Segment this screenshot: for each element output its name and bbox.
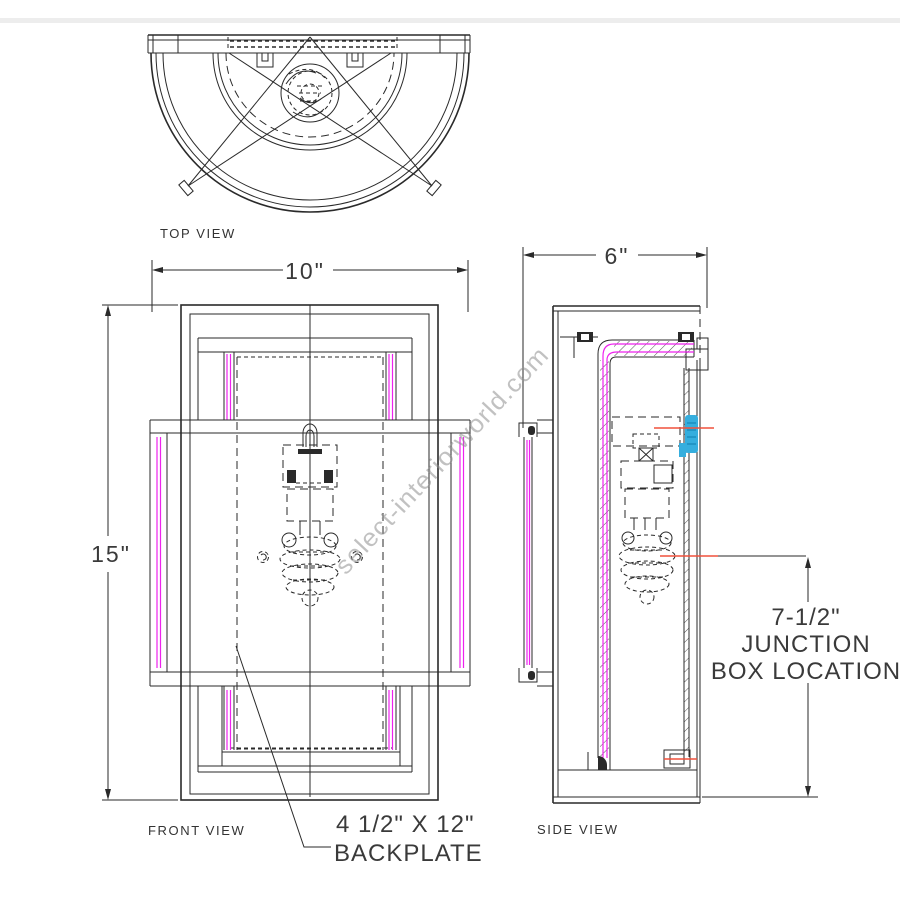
height-dimension-label: 15" xyxy=(91,541,131,567)
width-dimension-label: 10" xyxy=(285,258,325,284)
junction-dim-label: 7-1/2" xyxy=(771,604,840,631)
side-view: 6" xyxy=(519,243,900,837)
watermark: select-interiorworld.com xyxy=(330,341,555,580)
dimension-height-15: 15" xyxy=(91,305,178,800)
page-divider xyxy=(0,18,900,23)
backplate-size-label: 4 1/2" X 12" xyxy=(336,811,474,838)
junction-box-assembly xyxy=(612,415,714,530)
dimension-width-10: 10" xyxy=(152,258,468,312)
front-glass-edge xyxy=(519,420,553,686)
top-view-label: TOP VIEW xyxy=(160,226,236,241)
front-view: 10" 15" xyxy=(91,258,482,867)
backplate-name-label: BACKPLATE xyxy=(334,840,483,867)
glass-panel-side xyxy=(560,332,694,758)
dimension-junction-location: 7-1/2" JUNCTION BOX LOCATION xyxy=(660,556,900,797)
drawing-canvas: TOP VIEW 10" 15" xyxy=(0,0,900,900)
junction-location-label: BOX LOCATION xyxy=(711,658,900,685)
bottom-bracket-right xyxy=(664,750,697,768)
backplate-callout: 4 1/2" X 12" BACKPLATE xyxy=(236,646,483,867)
crystal-scribble-side xyxy=(619,532,675,604)
front-view-label: FRONT VIEW xyxy=(148,823,245,838)
depth-dimension-label: 6" xyxy=(605,243,630,269)
junction-word-label: JUNCTION xyxy=(741,631,870,658)
top-view: TOP VIEW xyxy=(148,35,470,241)
technical-drawing: TOP VIEW 10" 15" xyxy=(0,0,900,900)
mounting-screw xyxy=(685,415,698,453)
side-view-label: SIDE VIEW xyxy=(537,822,619,837)
